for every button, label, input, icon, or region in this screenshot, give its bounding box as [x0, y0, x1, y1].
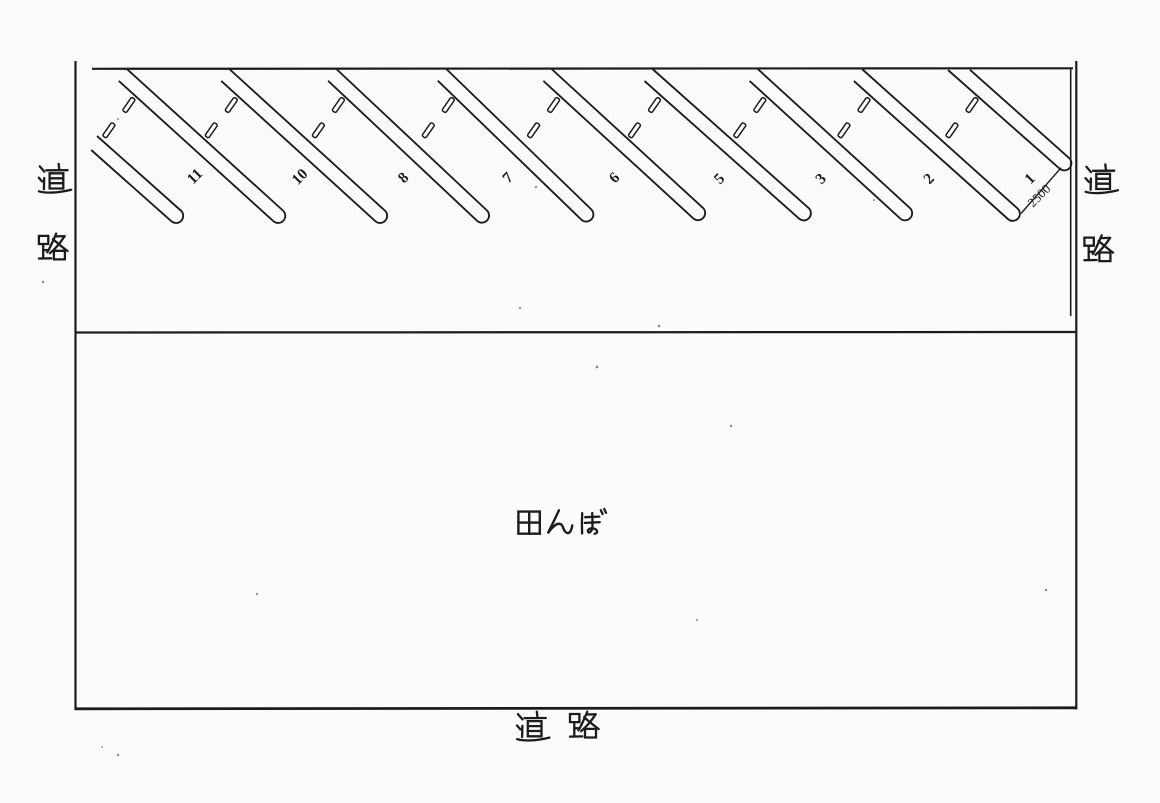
svg-text:8: 8: [395, 169, 413, 187]
svg-text:2500: 2500: [1025, 181, 1054, 210]
svg-text:10: 10: [289, 165, 312, 188]
svg-text:11: 11: [184, 165, 206, 187]
svg-text:7: 7: [499, 169, 517, 187]
svg-text:2: 2: [920, 170, 938, 188]
svg-text:3: 3: [812, 170, 830, 188]
svg-text:6: 6: [606, 169, 624, 187]
svg-text:5: 5: [711, 170, 729, 188]
svg-text:1: 1: [1021, 170, 1039, 188]
